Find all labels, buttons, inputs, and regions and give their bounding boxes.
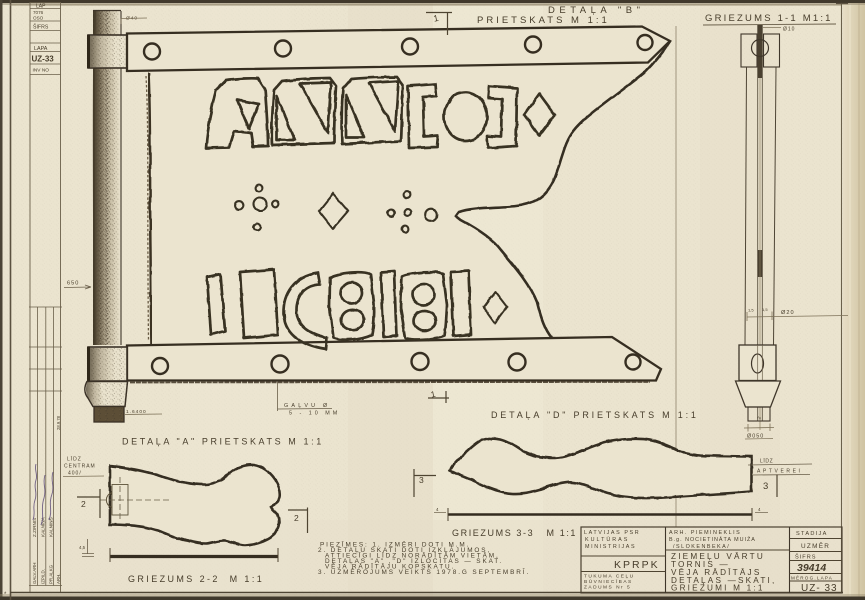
svg-text:LĪDZ: LĪDZ bbox=[67, 456, 82, 463]
svg-text:PR.ALKG: PR.ALKG bbox=[48, 564, 53, 584]
svg-text:3: 3 bbox=[763, 481, 769, 492]
svg-text:GRIEZUMS 3-3 M 1:1: GRIEZUMS 3-3 M 1:1 bbox=[452, 528, 577, 538]
svg-text:TUKUMA CEĻU: TUKUMA CEĻU bbox=[584, 574, 635, 580]
svg-text:7076: 7076 bbox=[33, 10, 44, 15]
svg-text:UZ- 33: UZ- 33 bbox=[801, 583, 838, 594]
svg-text:BŪVNIECĪBAS: BŪVNIECĪBAS bbox=[584, 578, 633, 585]
svg-text:3: 3 bbox=[419, 475, 425, 485]
svg-text:ZADUMS Nr 5: ZADUMS Nr 5 bbox=[584, 585, 631, 591]
svg-text:/SLOKENBEKA/: /SLOKENBEKA/ bbox=[673, 544, 730, 550]
svg-text:B.g. NOCIETINĀTA MUIŽA: B.g. NOCIETINĀTA MUIŽA bbox=[669, 535, 756, 543]
svg-text:UZMĒR: UZMĒR bbox=[801, 542, 830, 550]
svg-text:4: 4 bbox=[436, 507, 439, 512]
svg-text:STADIJA: STADIJA bbox=[796, 531, 828, 537]
svg-text:LATVIJAS PSR: LATVIJAS PSR bbox=[584, 530, 640, 536]
svg-text:650: 650 bbox=[67, 281, 79, 287]
svg-text:2: 2 bbox=[81, 499, 87, 509]
svg-text:KULTŪRAS: KULTŪRAS bbox=[585, 536, 629, 543]
svg-text:GRIEZUMS 1-1 M1:1: GRIEZUMS 1-1 M1:1 bbox=[705, 13, 833, 24]
svg-text:4: 4 bbox=[758, 507, 761, 512]
svg-text:Ø20: Ø20 bbox=[781, 310, 795, 316]
svg-text:GAĻVU Ø: GAĻVU Ø bbox=[284, 403, 330, 409]
svg-text:2: 2 bbox=[294, 513, 300, 523]
svg-text:5 - 10 MM: 5 - 10 MM bbox=[289, 411, 340, 417]
svg-text:APTVEREI: APTVEREI bbox=[757, 469, 803, 475]
svg-text:DETAĻA "A" PRIETSKATS M 1:1: DETAĻA "A" PRIETSKATS M 1:1 bbox=[122, 437, 324, 447]
svg-text:KALNIŅA: KALNIŅA bbox=[40, 517, 45, 537]
svg-text:400/: 400/ bbox=[68, 471, 82, 477]
svg-text:39414: 39414 bbox=[797, 562, 826, 574]
svg-text:1,5: 1,5 bbox=[762, 307, 768, 312]
svg-text:DETAĻA "D" PRIETSKATS M 1:1: DETAĻA "D" PRIETSKATS M 1:1 bbox=[491, 410, 699, 420]
svg-text:ŠIFRS: ŠIFRS bbox=[33, 24, 49, 31]
svg-text:LAPA: LAPA bbox=[34, 46, 48, 52]
svg-text:1,5: 1,5 bbox=[748, 308, 754, 313]
svg-text:GALV.ARH: GALV.ARH bbox=[32, 563, 37, 584]
svg-text:Ø10: Ø10 bbox=[783, 27, 795, 33]
svg-text:MĒROG.LAPA: MĒROG.LAPA bbox=[791, 575, 833, 581]
svg-text:UZ-33: UZ-33 bbox=[32, 55, 55, 64]
svg-text:KALNIŅŠ: KALNIŅŠ bbox=[47, 517, 53, 537]
svg-text:3. UZMĒROJUMS VEIKTS 1978.G: 3. UZMĒROJUMS VEIKTS 1978.G SEPTEMBRĪ. bbox=[318, 568, 530, 576]
svg-text:LAP: LAP bbox=[36, 4, 46, 10]
svg-text:MINISTRIJAS: MINISTRIJAS bbox=[585, 544, 636, 550]
svg-text:4,5: 4,5 bbox=[79, 545, 86, 550]
svg-text:28.9.78: 28.9.78 bbox=[56, 415, 61, 430]
svg-text:ARH.: ARH. bbox=[56, 574, 61, 585]
svg-text:Z.ZIRNIS: Z.ZIRNIS bbox=[32, 518, 37, 537]
svg-text:IZPILD.: IZPILD. bbox=[40, 569, 45, 584]
svg-text:KPRPK: KPRPK bbox=[614, 559, 660, 571]
svg-text:ARH. PIEMINEKLIS: ARH. PIEMINEKLIS bbox=[669, 530, 741, 536]
svg-text:GRIEZUMS 2-2 M 1:1: GRIEZUMS 2-2 M 1:1 bbox=[128, 574, 264, 584]
svg-text:GRIEZUMI M 1:1: GRIEZUMI M 1:1 bbox=[671, 584, 765, 593]
svg-text:CENTRAM: CENTRAM bbox=[64, 464, 96, 470]
svg-text:LĪDZ: LĪDZ bbox=[760, 458, 773, 465]
svg-text:INV NO: INV NO bbox=[33, 68, 50, 74]
svg-text:ŠIFRS: ŠIFRS bbox=[795, 554, 816, 561]
svg-text:PRIETSKATS M 1:1: PRIETSKATS M 1:1 bbox=[477, 15, 610, 26]
svg-text:OSO: OSO bbox=[33, 16, 44, 21]
